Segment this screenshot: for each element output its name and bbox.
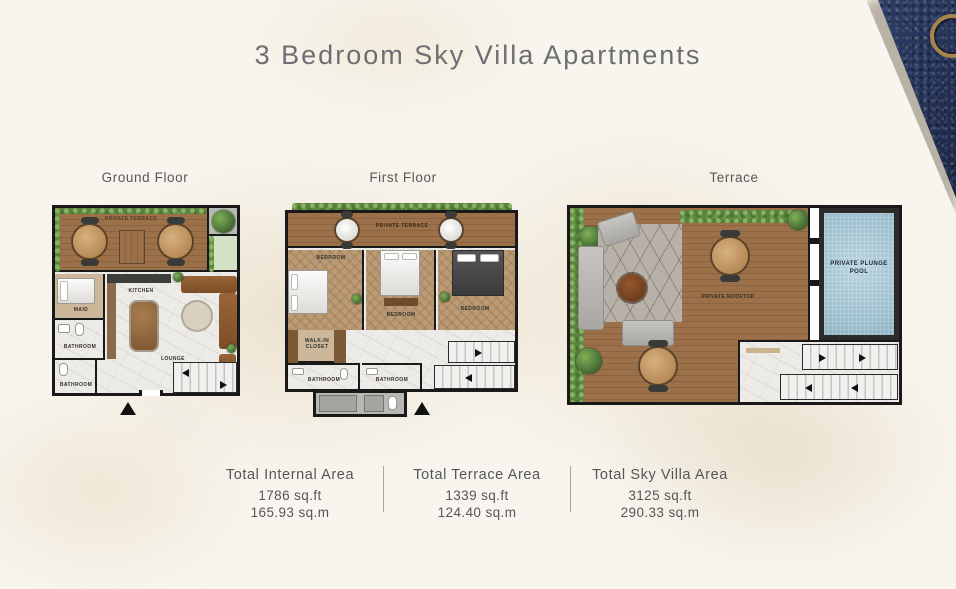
floor-label-terrace: Terrace xyxy=(661,170,807,185)
ground-entry-arrow-icon xyxy=(120,402,136,415)
room-label: BEDROOM xyxy=(376,312,426,318)
wall xyxy=(810,238,819,244)
stat-sqm: 165.93 sq.m xyxy=(200,504,380,521)
rug xyxy=(181,300,213,332)
stat-skyvilla-area: Total Sky Villa Area 3125 sq.ft 290.33 s… xyxy=(570,467,750,522)
terrace-plan: PRIVATE ROOFTOP PRIVATE PLUNGE POOL xyxy=(567,205,902,405)
bed xyxy=(288,270,328,314)
dining-table xyxy=(159,225,192,258)
pillow xyxy=(291,274,298,290)
floor-label-ground: Ground Floor xyxy=(72,170,218,185)
sink xyxy=(58,324,70,333)
bathroom-1: BATHROOM xyxy=(55,320,105,360)
sofa xyxy=(181,276,237,293)
stat-label: Total Terrace Area xyxy=(387,467,567,483)
pillow xyxy=(384,253,399,260)
hedge xyxy=(55,208,60,272)
stat-sqft: 1339 sq.ft xyxy=(387,487,567,504)
plant-icon xyxy=(173,272,183,282)
stat-divider xyxy=(383,466,384,512)
entry-door xyxy=(139,390,163,396)
bedroom-2: BEDROOM xyxy=(366,250,436,330)
terrace-stair-zone xyxy=(738,340,899,402)
stair-arrow-icon xyxy=(819,354,826,362)
room-label: PRIVATE PLUNGE POOL xyxy=(829,261,889,276)
bench xyxy=(119,230,145,264)
plant-icon xyxy=(440,292,450,302)
tree-icon xyxy=(212,210,235,233)
room-label: BEDROOM xyxy=(450,306,500,312)
stat-label: Total Sky Villa Area xyxy=(570,467,750,483)
bistro-table xyxy=(336,219,358,241)
bench xyxy=(384,298,418,306)
dining-island xyxy=(131,302,157,350)
pillow xyxy=(291,295,298,311)
bedroom-3: BEDROOM xyxy=(438,250,515,330)
room-label: BATHROOM xyxy=(55,382,97,388)
first-floor-shower-block xyxy=(313,390,407,417)
pool-walkway xyxy=(808,208,819,340)
stat-sqft: 3125 sq.ft xyxy=(570,487,750,504)
brochure-page: 3 Bedroom Sky Villa Apartments Ground Fl… xyxy=(0,0,956,589)
stat-sqm: 124.40 sq.m xyxy=(387,504,567,521)
kitchen-counter xyxy=(107,274,171,283)
sink xyxy=(292,368,304,375)
toilet xyxy=(75,323,84,336)
page-title: 3 Bedroom Sky Villa Apartments xyxy=(0,40,956,71)
pillow xyxy=(480,254,499,262)
hedge xyxy=(55,208,207,214)
pillow xyxy=(457,254,476,262)
room-label: KITCHEN xyxy=(115,288,167,294)
staircase-upper xyxy=(802,344,898,370)
stair-arrow-icon xyxy=(475,349,482,357)
stat-sqft: 1786 sq.ft xyxy=(200,487,380,504)
floor-label-first: First Floor xyxy=(330,170,476,185)
bathroom-1: BATHROOM xyxy=(288,363,360,389)
shower xyxy=(364,395,384,412)
stair-arrow-icon xyxy=(805,384,812,392)
pillow xyxy=(402,253,417,260)
bedroom-1: BEDROOM xyxy=(288,250,364,330)
room-label: WALK-IN CLOSET xyxy=(300,338,334,351)
bathroom-2: BATHROOM xyxy=(55,360,97,393)
bed xyxy=(380,250,420,296)
bistro-table xyxy=(440,219,462,241)
maid-room: MAID xyxy=(55,274,105,320)
toilet xyxy=(388,396,397,410)
room-label: PRIVATE TERRACE xyxy=(95,216,167,222)
sofa xyxy=(219,293,237,349)
staircase-upper xyxy=(448,341,515,363)
tree-planter xyxy=(207,208,237,236)
first-terrace-balcony: PRIVATE TERRACE xyxy=(288,213,515,248)
ground-terrace-deck: PRIVATE TERRACE xyxy=(55,208,207,272)
bed xyxy=(452,250,504,296)
stair-arrow-icon xyxy=(465,374,472,382)
plunge-pool: PRIVATE PLUNGE POOL xyxy=(819,208,899,340)
first-entry-arrow-icon xyxy=(414,402,430,415)
staircase xyxy=(173,362,237,393)
stat-terrace-area: Total Terrace Area 1339 sq.ft 124.40 sq.… xyxy=(387,467,567,522)
kitchen-cabinet xyxy=(107,283,116,359)
dining-table xyxy=(640,348,676,384)
plant-icon xyxy=(352,294,362,304)
room-label: PRIVATE ROOFTOP xyxy=(696,294,760,300)
room-label: MAID xyxy=(61,307,101,313)
wardrobe xyxy=(288,330,298,363)
stair-arrow-icon xyxy=(851,384,858,392)
wardrobe xyxy=(334,330,346,363)
garden-strip xyxy=(207,236,237,272)
plant-icon xyxy=(227,344,236,353)
ground-floor-plan: PRIVATE TERRACE MAID BATHROOM BA xyxy=(52,205,240,396)
shower xyxy=(319,395,357,412)
sink xyxy=(366,368,378,375)
toilet xyxy=(59,363,68,376)
stat-sqm: 290.33 sq.m xyxy=(570,504,750,521)
dining-table xyxy=(712,238,748,274)
staircase-lower xyxy=(434,365,515,389)
coffee-table xyxy=(618,274,646,302)
walk-in-closet: WALK-IN CLOSET xyxy=(288,330,346,363)
room-label: BATHROOM xyxy=(296,377,352,383)
staircase-lower xyxy=(780,374,898,400)
dining-table xyxy=(73,225,106,258)
room-label: BATHROOM xyxy=(57,344,103,350)
palm-icon xyxy=(576,348,602,374)
palm-icon xyxy=(788,210,808,230)
stair-arrow-icon xyxy=(859,354,866,362)
hedge xyxy=(209,236,214,272)
stat-label: Total Internal Area xyxy=(200,467,380,483)
stair-arrow-icon xyxy=(220,381,227,389)
first-floor-plan: PRIVATE TERRACE BEDROOM BEDROOM xyxy=(285,210,518,392)
bench xyxy=(746,348,780,353)
stat-internal-area: Total Internal Area 1786 sq.ft 165.93 sq… xyxy=(200,467,380,522)
bathroom-2: BATHROOM xyxy=(362,363,422,389)
wall xyxy=(810,280,819,286)
room-label: BEDROOM xyxy=(306,255,356,261)
room-label: BATHROOM xyxy=(364,377,420,383)
outdoor-sofa xyxy=(578,246,604,330)
pillow xyxy=(60,281,68,301)
room-label: PRIVATE TERRACE xyxy=(374,223,430,229)
bed xyxy=(57,278,95,304)
stair-arrow-icon xyxy=(182,369,189,377)
